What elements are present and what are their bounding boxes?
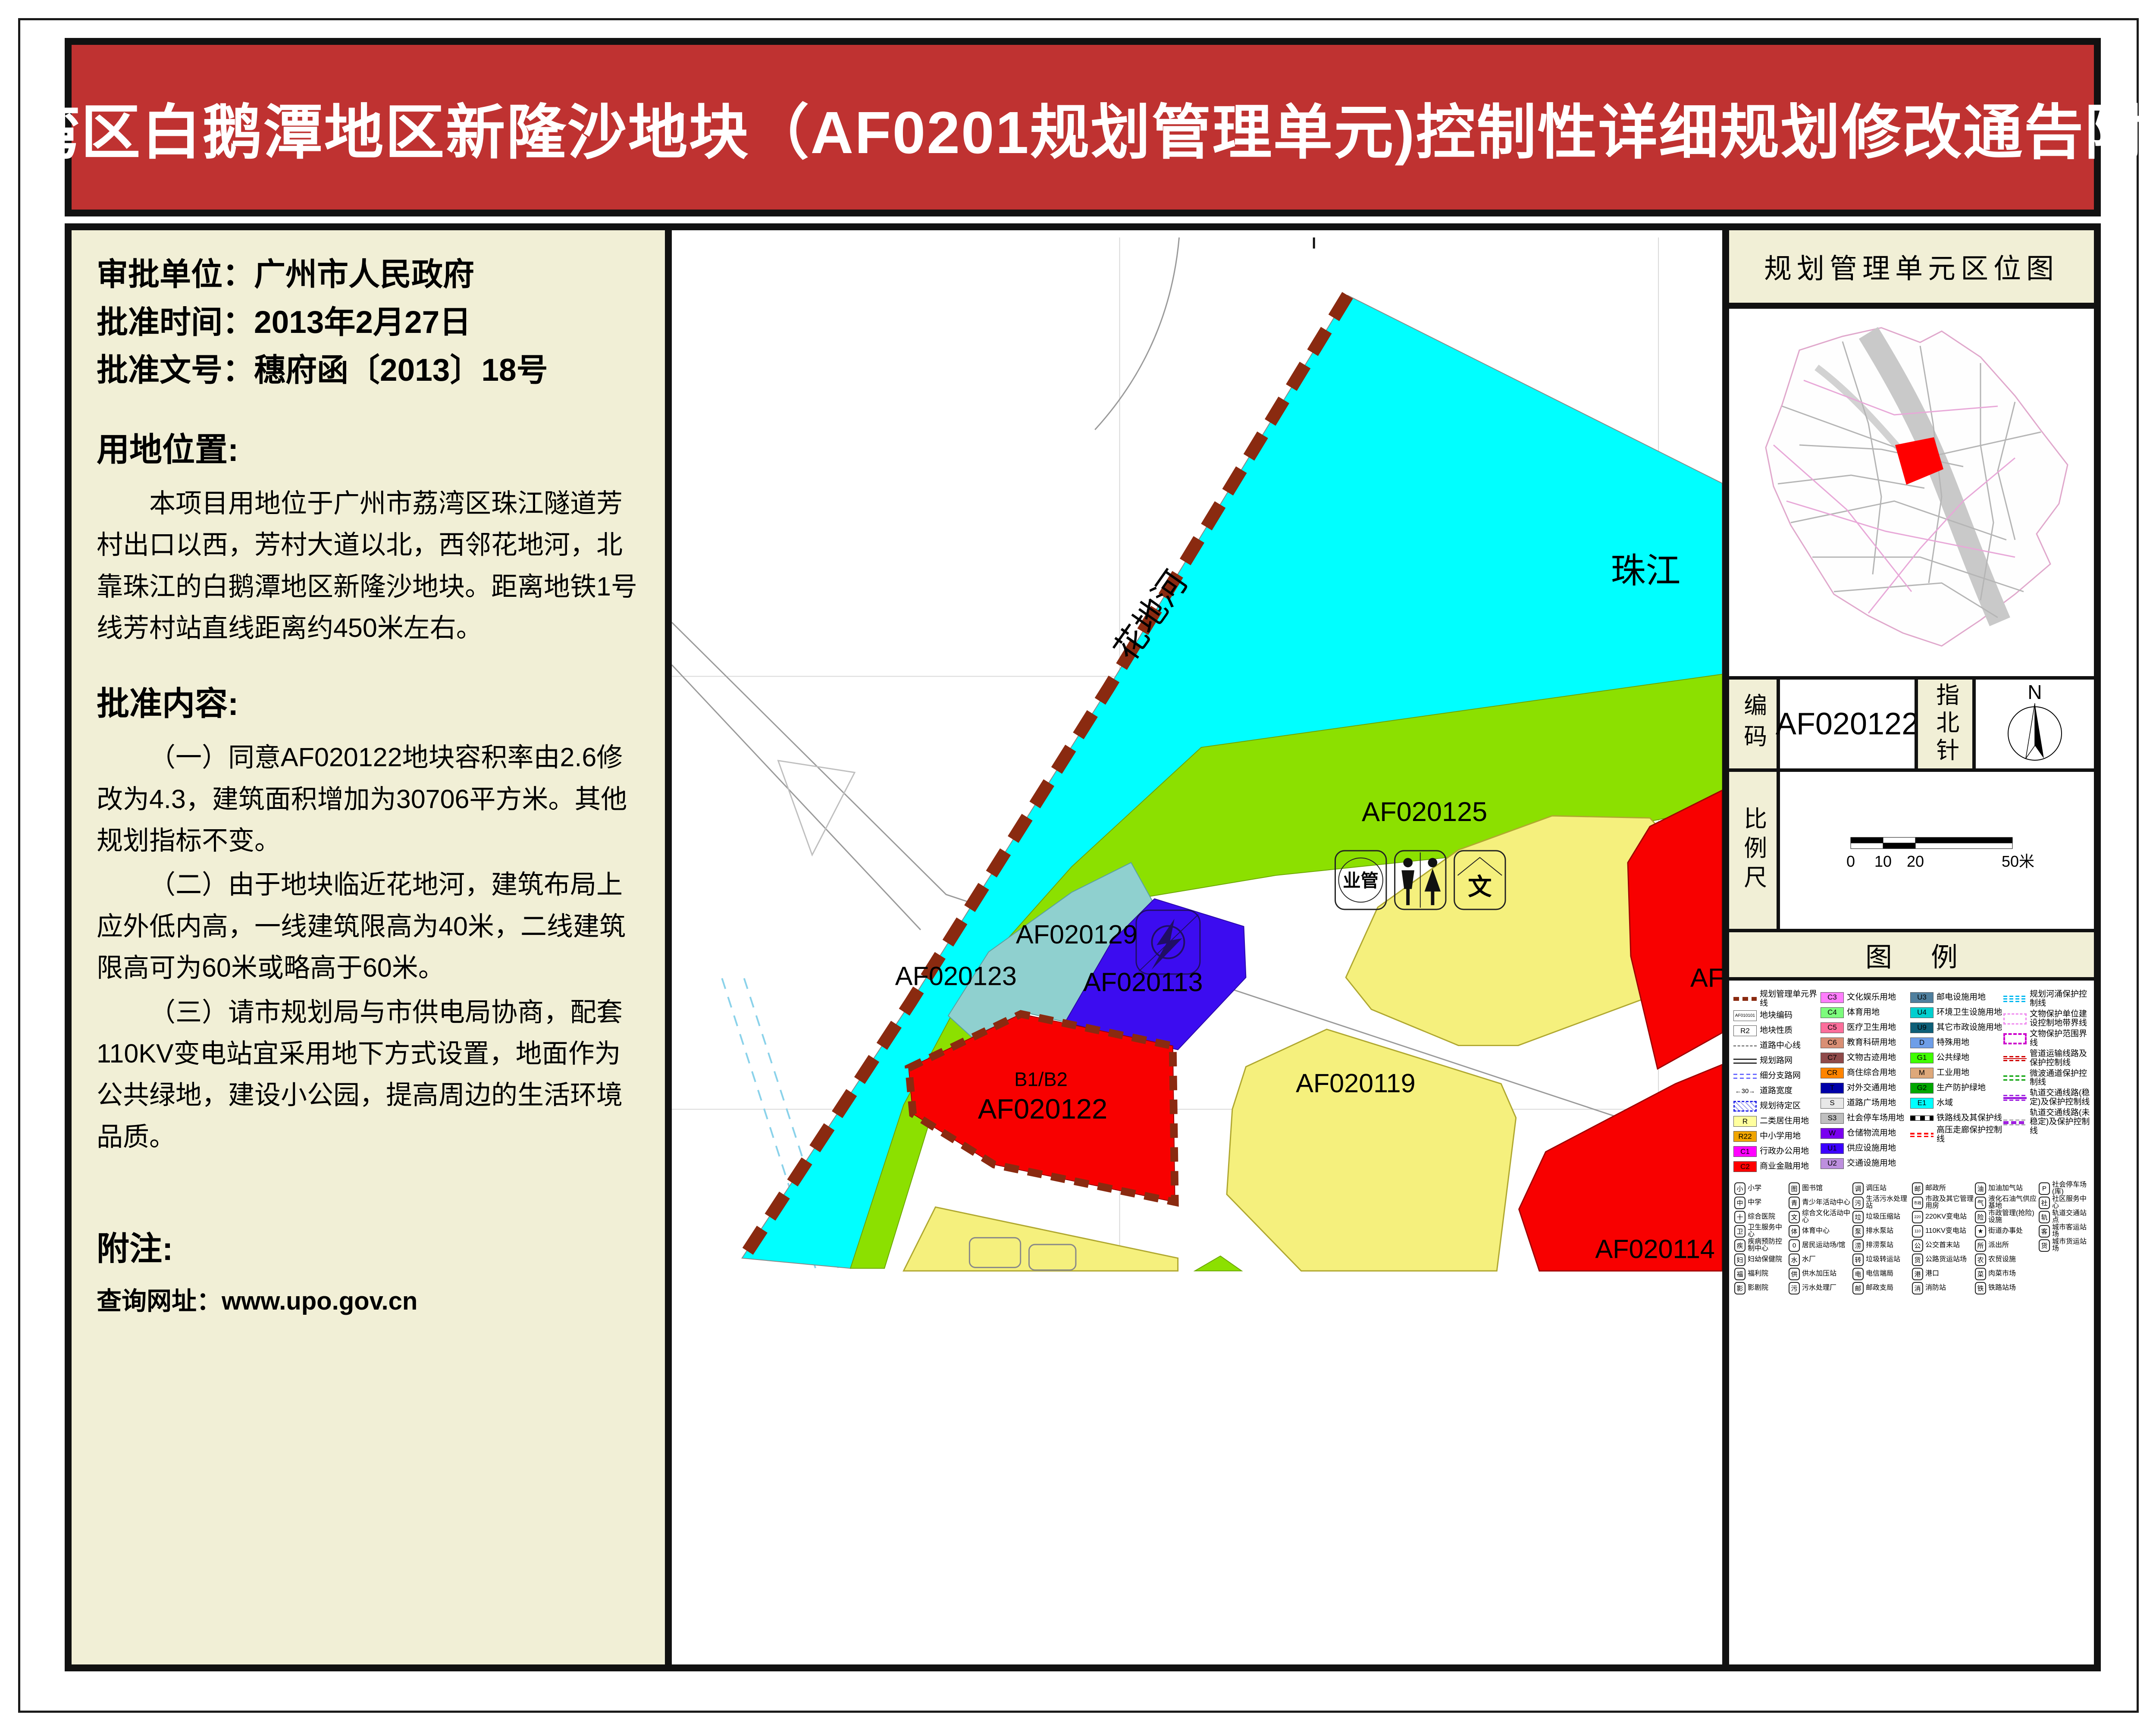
facility-police-station: 所派出所	[1975, 1238, 2039, 1253]
telecom-icon: 电	[1852, 1268, 1864, 1280]
facility-middle-school: 中中学	[1734, 1196, 1789, 1210]
drain-pump-icon: 泵	[1852, 1225, 1864, 1238]
legend-item-U1: U1供应设施用地	[1821, 1141, 1910, 1156]
river-protect-swatch	[2003, 996, 2027, 1003]
parcel-AF020119-yellow	[1227, 1029, 1516, 1271]
facility-col-4: 邮邮政所 市政市政及其它管理用房 220220KV变电站 110110KV变电站…	[1912, 1182, 1975, 1295]
legend-item-D: D特殊用地	[1910, 1035, 2003, 1050]
primary-school-icon: 小	[1734, 1182, 1745, 1195]
R-swatch: R	[1733, 1116, 1757, 1127]
planning-map: 业管 文	[672, 230, 1722, 1278]
road-freight-icon: 货	[1912, 1254, 1923, 1266]
S-swatch: S	[1821, 1098, 1844, 1109]
facility-maternity: 妇妇幼保健院	[1734, 1253, 1789, 1267]
maternity-icon: 妇	[1734, 1254, 1745, 1266]
facility-emergency: 险市政管理(抢险)设施	[1975, 1210, 2039, 1224]
library-icon: 图	[1789, 1182, 1800, 1195]
svg-text:业管: 业管	[1343, 871, 1379, 891]
scale-row: 比例尺 0 10 20 50米	[1729, 768, 2094, 929]
north-letter: N	[2028, 681, 2042, 703]
facility-primary-school: 小小学	[1734, 1182, 1789, 1196]
pressure-station-icon: 调	[1852, 1182, 1864, 1195]
plan-notice-sheet: 荔湾区白鹅潭地区新隆沙地块（AF0201规划管理单元)控制性详细规划修改通告附图…	[0, 0, 2156, 1730]
landuse-legend: 规划管理单元界线 AF010101地块编码 R2地块性质 道路中心线 规划路网 …	[1729, 981, 2094, 1175]
emergency-icon: 险	[1975, 1211, 1986, 1223]
legend-item-C6: C6教育科研用地	[1821, 1035, 1910, 1050]
scale-bar: 0 10 20 50米	[1825, 824, 2049, 876]
water-pressure-icon: 供	[1789, 1268, 1800, 1280]
svg-text:文: 文	[1468, 873, 1492, 900]
theater-icon: 影	[1734, 1282, 1745, 1294]
bus-terminus-icon: 公	[1912, 1239, 1923, 1252]
legend-item-pending-zone: 规划待定区	[1733, 1099, 1821, 1114]
label-zhujiang: 珠江	[1611, 552, 1681, 591]
facility-garbage-compress: 垃垃圾压缩站	[1852, 1210, 1912, 1224]
substation-220-icon: 220	[1912, 1211, 1923, 1223]
facility-gas-station: 油加油加气站	[1975, 1182, 2039, 1196]
legend-item-C5: C5医疗卫生用地	[1821, 1020, 1910, 1035]
facility-col-2: 图图书馆 青青少年活动中心 文综合文化活动中心 体体育中心 0居民运动场/馆 水…	[1789, 1182, 1852, 1295]
municipal-house-icon: 市政	[1912, 1197, 1923, 1209]
facility-sewage-station: 污生活污水处理站	[1852, 1196, 1912, 1210]
scale-tick-0: 0	[1846, 852, 1855, 870]
legend-item-parcel-code: AF010101地块编码	[1733, 1009, 1821, 1023]
sub-road-swatch	[1733, 1074, 1757, 1079]
label-af020119: AF020119	[1296, 1069, 1416, 1098]
facility-legend: 小小学 中中学 十综合医院 卫卫生服务中心 疾疾病预防控制中心 妇妇幼保健院 福…	[1729, 1175, 2094, 1295]
facility-fire-station: 消消防站	[1912, 1281, 1975, 1295]
approved-content-item-3: （三）请市规划局与市供电局协商，配套110KV变电站宜采用地下方式设置，地面作为…	[97, 991, 640, 1158]
rail-yard-icon: 铁	[1975, 1282, 1986, 1294]
road-net-swatch	[1733, 1059, 1757, 1064]
garbage-transfer-icon: 转	[1852, 1254, 1864, 1266]
facility-water-pressure: 供供水加压站	[1789, 1267, 1852, 1281]
facility-col-1: 小小学 中中学 十综合医院 卫卫生服务中心 疾疾病预防控制中心 妇妇幼保健院 福…	[1734, 1182, 1789, 1295]
content-area: 审批单位：广州市人民政府 批准时间：2013年2月27日 批准文号：穗府函〔20…	[65, 223, 2101, 1671]
facility-col-3: 调调压站 污生活污水处理站 垃垃圾压缩站 泵排水泵站 涝排涝泵站 转垃圾转运站 …	[1852, 1182, 1912, 1295]
facility-welfare: 福福利院	[1734, 1267, 1789, 1281]
microwave-swatch	[2003, 1075, 2027, 1081]
legend-item-U2: U2交通设施用地	[1821, 1156, 1910, 1171]
landuse-col-1: 规划管理单元界线 AF010101地块编码 R2地块性质 道路中心线 规划路网 …	[1733, 990, 1821, 1175]
legend-item-G1: G1公共绿地	[1910, 1050, 2003, 1065]
facility-municipal-house: 市政市政及其它管理用房	[1912, 1196, 1975, 1210]
facility-sewage-plant: 污污水处理厂	[1789, 1281, 1852, 1295]
facility-library: 图图书馆	[1789, 1182, 1852, 1196]
parcel-nature-swatch: R2	[1733, 1025, 1757, 1036]
info-panel: 审批单位：广州市人民政府 批准时间：2013年2月27日 批准文号：穗府函〔20…	[72, 230, 665, 1664]
T-swatch: T	[1821, 1083, 1844, 1094]
health-center-icon: 卫	[1734, 1225, 1745, 1238]
facility-youth-center: 青青少年活动中心	[1789, 1196, 1852, 1210]
facility-substation-110: 110110KV变电站	[1912, 1224, 1975, 1238]
legend-item-C2: C2商业金融用地	[1733, 1160, 1821, 1174]
approved-content-heading: 批准内容:	[97, 677, 640, 724]
legend-item-metro-unstable: 轨道交通线路(未稳定)及保护控制线	[2003, 1109, 2091, 1136]
legend-item-CR: CR商住综合用地	[1821, 1066, 1910, 1080]
meat-market-icon: 菜	[1975, 1268, 1986, 1280]
road-width-swatch: ←30→	[1733, 1086, 1757, 1097]
facility-passenger-terminal: 客城市客运站场	[2039, 1224, 2092, 1238]
pipeline-swatch	[2003, 1056, 2027, 1061]
C5-swatch: C5	[1821, 1022, 1844, 1033]
legend-item-U3: U3邮电设施用地	[1910, 990, 2003, 1005]
U3-swatch: U3	[1910, 992, 1934, 1003]
legend-item-C7: C7文物古迹用地	[1821, 1050, 1910, 1065]
legend-item-pipeline: 管道运输线路及保护控制线	[2003, 1048, 2091, 1069]
facility-col-6: P社会停车场(库) 社社区服务中心 轨轨道交通站点 客城市客运站场 货城市货运站…	[2039, 1182, 2092, 1295]
legend-item-M: M工业用地	[1910, 1066, 2003, 1080]
location-text: 本项目用地位于广州市荔湾区珠江隧道芳村出口以西，芳村大道以北，西邻花地河，北靠珠…	[97, 483, 640, 649]
planning-map-panel: 业管 文	[665, 230, 1729, 1664]
facility-residents-gym: 0居民运动场/馆	[1789, 1238, 1852, 1253]
pending-zone-swatch	[1733, 1101, 1757, 1112]
legend-item-C4: C4体育用地	[1821, 1005, 1910, 1020]
gas-station-icon: 油	[1975, 1182, 1986, 1195]
label-af020122: AF020122	[978, 1093, 1107, 1125]
hospital-icon: 十	[1734, 1211, 1745, 1223]
youth-center-icon: 青	[1789, 1197, 1800, 1209]
approved-content-item-1: （一）同意AF020122地块容积率由2.6修改为4.3，建筑面积增加为3070…	[97, 737, 640, 861]
facility-lpg-base: 气液化石油气供应基地	[1975, 1196, 2039, 1210]
code-compass-row: 编码 AF020122 指北针 N	[1729, 676, 2094, 768]
scale-bar-cell: 0 10 20 50米	[1780, 772, 2094, 929]
facility-waterworks: 水水厂	[1789, 1253, 1852, 1267]
label-af020123: AF020123	[895, 962, 1017, 991]
R22-swatch: R22	[1733, 1131, 1757, 1142]
U9-swatch: U9	[1910, 1022, 1934, 1033]
legend-item-S: S道路广场用地	[1821, 1096, 1910, 1110]
parcel-yellow-bottom-left	[903, 1207, 1178, 1271]
legend-item-G2: G2生产防护绿地	[1910, 1081, 2003, 1095]
facility-theater: 影影剧院	[1734, 1281, 1789, 1295]
location-map	[1729, 309, 2094, 676]
W-swatch: W	[1821, 1128, 1844, 1139]
legend-item-unit-boundary: 规划管理单元界线	[1733, 990, 1821, 1008]
legend-item-C1: C1行政办公用地	[1733, 1144, 1821, 1159]
G1-swatch: G1	[1910, 1053, 1934, 1063]
landuse-col-4: 规划河涌保护控制线 文物保护单位建设控制地带界线 文物保护范围界线 管道运输线路…	[2003, 990, 2091, 1175]
metro-stable-swatch	[2003, 1095, 2027, 1101]
facility-drain-pump: 泵排水泵站	[1852, 1224, 1912, 1238]
legend-item-R22: R22中小学用地	[1733, 1129, 1821, 1144]
legend-item-microwave: 微波通道保护控制线	[2003, 1069, 2091, 1088]
C6-swatch: C6	[1821, 1037, 1844, 1048]
fire-station-icon: 消	[1912, 1282, 1923, 1294]
facility-sports-center: 体体育中心	[1789, 1224, 1852, 1238]
waterworks-icon: 水	[1789, 1254, 1800, 1266]
legend-item-R: R二类居住用地	[1733, 1114, 1821, 1129]
facility-cdc: 疾疾病预防控制中心	[1734, 1238, 1789, 1253]
label-b1b2: B1/B2	[1014, 1068, 1068, 1090]
legend-item-U4: U4环境卫生设施用地	[1910, 1005, 2003, 1020]
landuse-col-2: C3文化娱乐用地 C4体育用地 C5医疗卫生用地 C6教育科研用地 C7文物古迹…	[1821, 990, 1910, 1175]
facility-port: 港港口	[1912, 1267, 1975, 1281]
scale-tick-10: 10	[1874, 852, 1892, 870]
legend-item-railway: 铁路线及其保护线	[1910, 1111, 2003, 1125]
facility-metro-station: 轨轨道交通站点	[2039, 1210, 2092, 1224]
G2-swatch: G2	[1910, 1083, 1934, 1094]
C4-swatch: C4	[1821, 1007, 1844, 1018]
scale-tick-20: 20	[1907, 852, 1924, 870]
compass-label: 指北针	[1930, 683, 1960, 765]
legend-item-heritage-zone: 文物保护单位建设控制地带界线	[2003, 1009, 2091, 1029]
query-url: 查询网址：www.upo.gov.cn	[97, 1282, 640, 1321]
location-map-title: 规划管理单元区位图	[1729, 230, 2094, 309]
culture-center-icon: 文	[1789, 1211, 1800, 1223]
legend-item-road-width: ←30→道路宽度	[1733, 1084, 1821, 1099]
note-heading: 附注:	[97, 1222, 640, 1269]
U2-swatch: U2	[1821, 1158, 1844, 1169]
north-arrow-cell: N	[1976, 680, 2094, 768]
legend-item-U9: U9其它市政设施用地	[1910, 1020, 2003, 1035]
heritage-zone-swatch	[2003, 1013, 2027, 1025]
scale-tick-50: 50米	[2002, 852, 2034, 870]
cdc-icon: 疾	[1734, 1239, 1745, 1252]
parcel-code-swatch: AF010101	[1733, 1010, 1757, 1021]
residents-gym-icon: 0	[1789, 1239, 1800, 1252]
legend-item-parcel-nature: R2地块性质	[1733, 1024, 1821, 1038]
label-af020114: AF020114	[1595, 1235, 1715, 1264]
U1-swatch: U1	[1821, 1143, 1844, 1154]
compass-label-cell: 指北针	[1915, 680, 1976, 768]
facility-substation-220: 220220KV变电站	[1912, 1210, 1975, 1224]
title-bar: 荔湾区白鹅潭地区新隆沙地块（AF0201规划管理单元)控制性详细规划修改通告附图	[65, 38, 2101, 216]
code-label: 编码	[1738, 693, 1767, 755]
metro-unstable-swatch	[2003, 1119, 2027, 1125]
facility-culture-center: 文综合文化活动中心	[1789, 1210, 1852, 1224]
facility-health-center: 卫卫生服务中心	[1734, 1224, 1789, 1238]
approval-date: 批准时间：2013年2月27日	[97, 299, 640, 347]
label-af020125: AF020125	[1362, 797, 1487, 827]
C3-swatch: C3	[1821, 992, 1844, 1003]
page-title: 荔湾区白鹅潭地区新隆沙地块（AF0201规划管理单元)控制性详细规划修改通告附图	[0, 84, 2156, 170]
facility-farm-market: 农农贸设施	[1975, 1253, 2039, 1267]
street-office-icon: ★	[1975, 1225, 1986, 1238]
facility-post-branch: 邮邮政支局	[1852, 1281, 1912, 1295]
C1-swatch: C1	[1733, 1146, 1757, 1157]
north-arrow: N	[1990, 681, 2080, 767]
facility-meat-market: 菜肉菜市场	[1975, 1267, 2039, 1281]
legend-item-hv-corridor: 高压走廊保护控制线	[1910, 1126, 2003, 1144]
side-panel: 规划管理单元区位图	[1729, 230, 2094, 1664]
legend-item-C3: C3文化娱乐用地	[1821, 990, 1910, 1005]
legend-item-metro-stable: 轨道交通线路(稳定)及保护控制线	[2003, 1088, 2091, 1108]
E1-swatch: E1	[1910, 1098, 1934, 1109]
sewage-plant-icon: 污	[1789, 1282, 1800, 1294]
unit-boundary-swatch	[1733, 997, 1757, 1001]
M-swatch: M	[1910, 1068, 1934, 1078]
public-parking-icon: P	[2039, 1182, 2050, 1195]
legend-item-road-center: 道路中心线	[1733, 1039, 1821, 1053]
facility-road-freight: 货公路货运站场	[1912, 1253, 1975, 1267]
facility-freight-terminal: 货城市货运站场	[2039, 1238, 2092, 1253]
code-value: AF020122	[1780, 680, 1915, 768]
middle-school-icon: 中	[1734, 1197, 1745, 1209]
post-branch-icon: 邮	[1852, 1282, 1864, 1294]
label-af0-clipped: AF0	[1690, 963, 1722, 992]
legend-item-S3: S3社会停车场用地	[1821, 1111, 1910, 1125]
lpg-base-icon: 气	[1975, 1197, 1986, 1209]
sewage-station-icon: 污	[1852, 1197, 1864, 1209]
scale-label-cell: 比例尺	[1729, 772, 1780, 929]
facility-flood-pump: 涝排涝泵站	[1852, 1238, 1912, 1253]
landuse-col-3: U3邮电设施用地 U4环境卫生设施用地 U9其它市政设施用地 D特殊用地 G1公…	[1910, 990, 2003, 1175]
facility-hospital: 十综合医院	[1734, 1210, 1789, 1224]
police-station-icon: 所	[1975, 1239, 1986, 1252]
location-heading: 用地位置:	[97, 423, 640, 470]
scale-label: 比例尺	[1738, 806, 1767, 894]
legend-item-heritage-boundary: 文物保护范围界线	[2003, 1030, 2091, 1048]
legend-title: 图例	[1729, 929, 2094, 981]
legend-item-T: T对外交通用地	[1821, 1081, 1910, 1095]
approval-unit: 审批单位：广州市人民政府	[97, 251, 640, 299]
C2-swatch: C2	[1733, 1161, 1757, 1172]
port-icon: 港	[1912, 1268, 1923, 1280]
legend-item-road-net: 规划路网	[1733, 1054, 1821, 1069]
facility-col-5: 油加油加气站 气液化石油气供应基地 险市政管理(抢险)设施 ★街道办事处 所派出…	[1975, 1182, 2039, 1295]
CR-swatch: CR	[1821, 1068, 1844, 1078]
freight-terminal-icon: 货	[2039, 1239, 2050, 1252]
substation-110-icon: 110	[1912, 1225, 1923, 1238]
flood-pump-icon: 涝	[1852, 1239, 1864, 1252]
D-swatch: D	[1910, 1037, 1934, 1048]
approved-content-item-2: （二）由于地块临近花地河，建筑布局上应外低内高，一线建筑限高为40米，二线建筑限…	[97, 864, 640, 988]
legend-item-sub-road: 细分支路网	[1733, 1069, 1821, 1084]
railway-swatch	[1910, 1116, 1934, 1121]
facility-pressure-station: 调调压站	[1852, 1182, 1912, 1196]
welfare-icon: 福	[1734, 1268, 1745, 1280]
community-center-icon: 社	[2039, 1197, 2050, 1209]
post-office-icon: 邮	[1912, 1182, 1923, 1195]
farm-market-icon: 农	[1975, 1254, 1986, 1266]
sports-center-icon: 体	[1789, 1225, 1800, 1238]
facility-bus-terminus: 公公交首末站	[1912, 1238, 1975, 1253]
facility-garbage-transfer: 转垃圾转运站	[1852, 1253, 1912, 1267]
location-map-svg	[1739, 316, 2084, 669]
road-center-swatch	[1733, 1045, 1757, 1047]
label-af020113: AF020113	[1083, 967, 1203, 997]
facility-post-office: 邮邮政所	[1912, 1182, 1975, 1196]
code-label-cell: 编码	[1729, 680, 1780, 768]
facility-community-center: 社社区服务中心	[2039, 1196, 2092, 1210]
U4-swatch: U4	[1910, 1007, 1934, 1018]
legend-item-river-protect: 规划河涌保护控制线	[2003, 990, 2091, 1008]
C7-swatch: C7	[1821, 1053, 1844, 1063]
facility-street-office: ★街道办事处	[1975, 1224, 2039, 1238]
passenger-terminal-icon: 客	[2039, 1225, 2050, 1238]
parcel-green-bottom-small	[1195, 1256, 1241, 1271]
metro-station-icon: 轨	[2039, 1211, 2050, 1223]
garbage-compress-icon: 垃	[1852, 1211, 1864, 1223]
approval-doc-number: 批准文号：穗府函〔2013〕18号	[97, 347, 640, 395]
legend-item-E1: E1水域	[1910, 1096, 2003, 1110]
facility-telecom: 电电信端局	[1852, 1267, 1912, 1281]
label-af020129: AF020129	[1016, 920, 1138, 949]
S3-swatch: S3	[1821, 1113, 1844, 1124]
facility-rail-yard: 铁铁路站场	[1975, 1281, 2039, 1295]
heritage-boundary-swatch	[2003, 1033, 2027, 1044]
facility-public-parking: P社会停车场(库)	[2039, 1182, 2092, 1196]
legend-item-W: W仓储物流用地	[1821, 1126, 1910, 1141]
hv-corridor-swatch	[1910, 1133, 1934, 1137]
